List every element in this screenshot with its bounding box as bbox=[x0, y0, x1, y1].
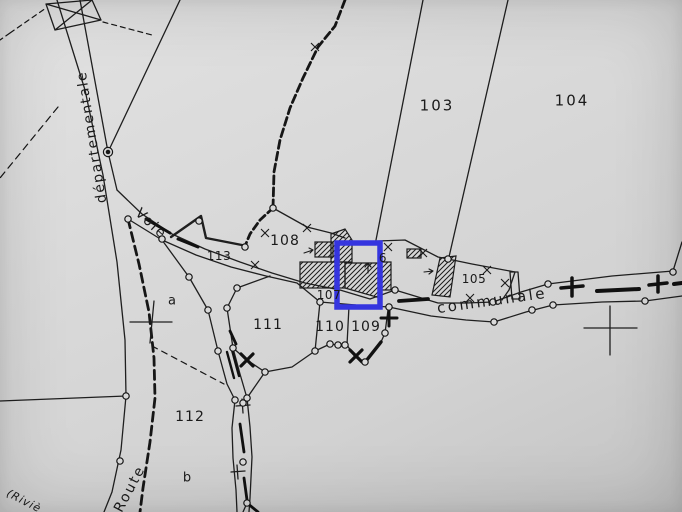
dashed-boundaries bbox=[0, 0, 345, 512]
parcel-label-105: 105 bbox=[462, 273, 486, 285]
subdivision-label-a: a bbox=[168, 295, 176, 308]
parcel-label-113: 113 bbox=[207, 250, 231, 262]
parcel-label-108: 108 bbox=[270, 234, 300, 248]
parcel-label-109: 109 bbox=[351, 320, 381, 334]
parcel-label-103: 103 bbox=[420, 99, 455, 114]
subdivision-label-b: b bbox=[183, 472, 191, 485]
map-linework bbox=[0, 0, 682, 512]
parcel-label-104: 104 bbox=[555, 94, 590, 109]
parcel-label-106-partial: 6 bbox=[379, 252, 387, 264]
cadastral-map: 103 104 105 6 107 108 109 110 111 112 11… bbox=[0, 0, 682, 512]
parcel-label-112: 112 bbox=[175, 410, 205, 424]
parcel-label-111: 111 bbox=[253, 318, 283, 332]
parcel-label-110: 110 bbox=[315, 320, 345, 334]
parcel-label-107: 107 bbox=[317, 289, 341, 301]
